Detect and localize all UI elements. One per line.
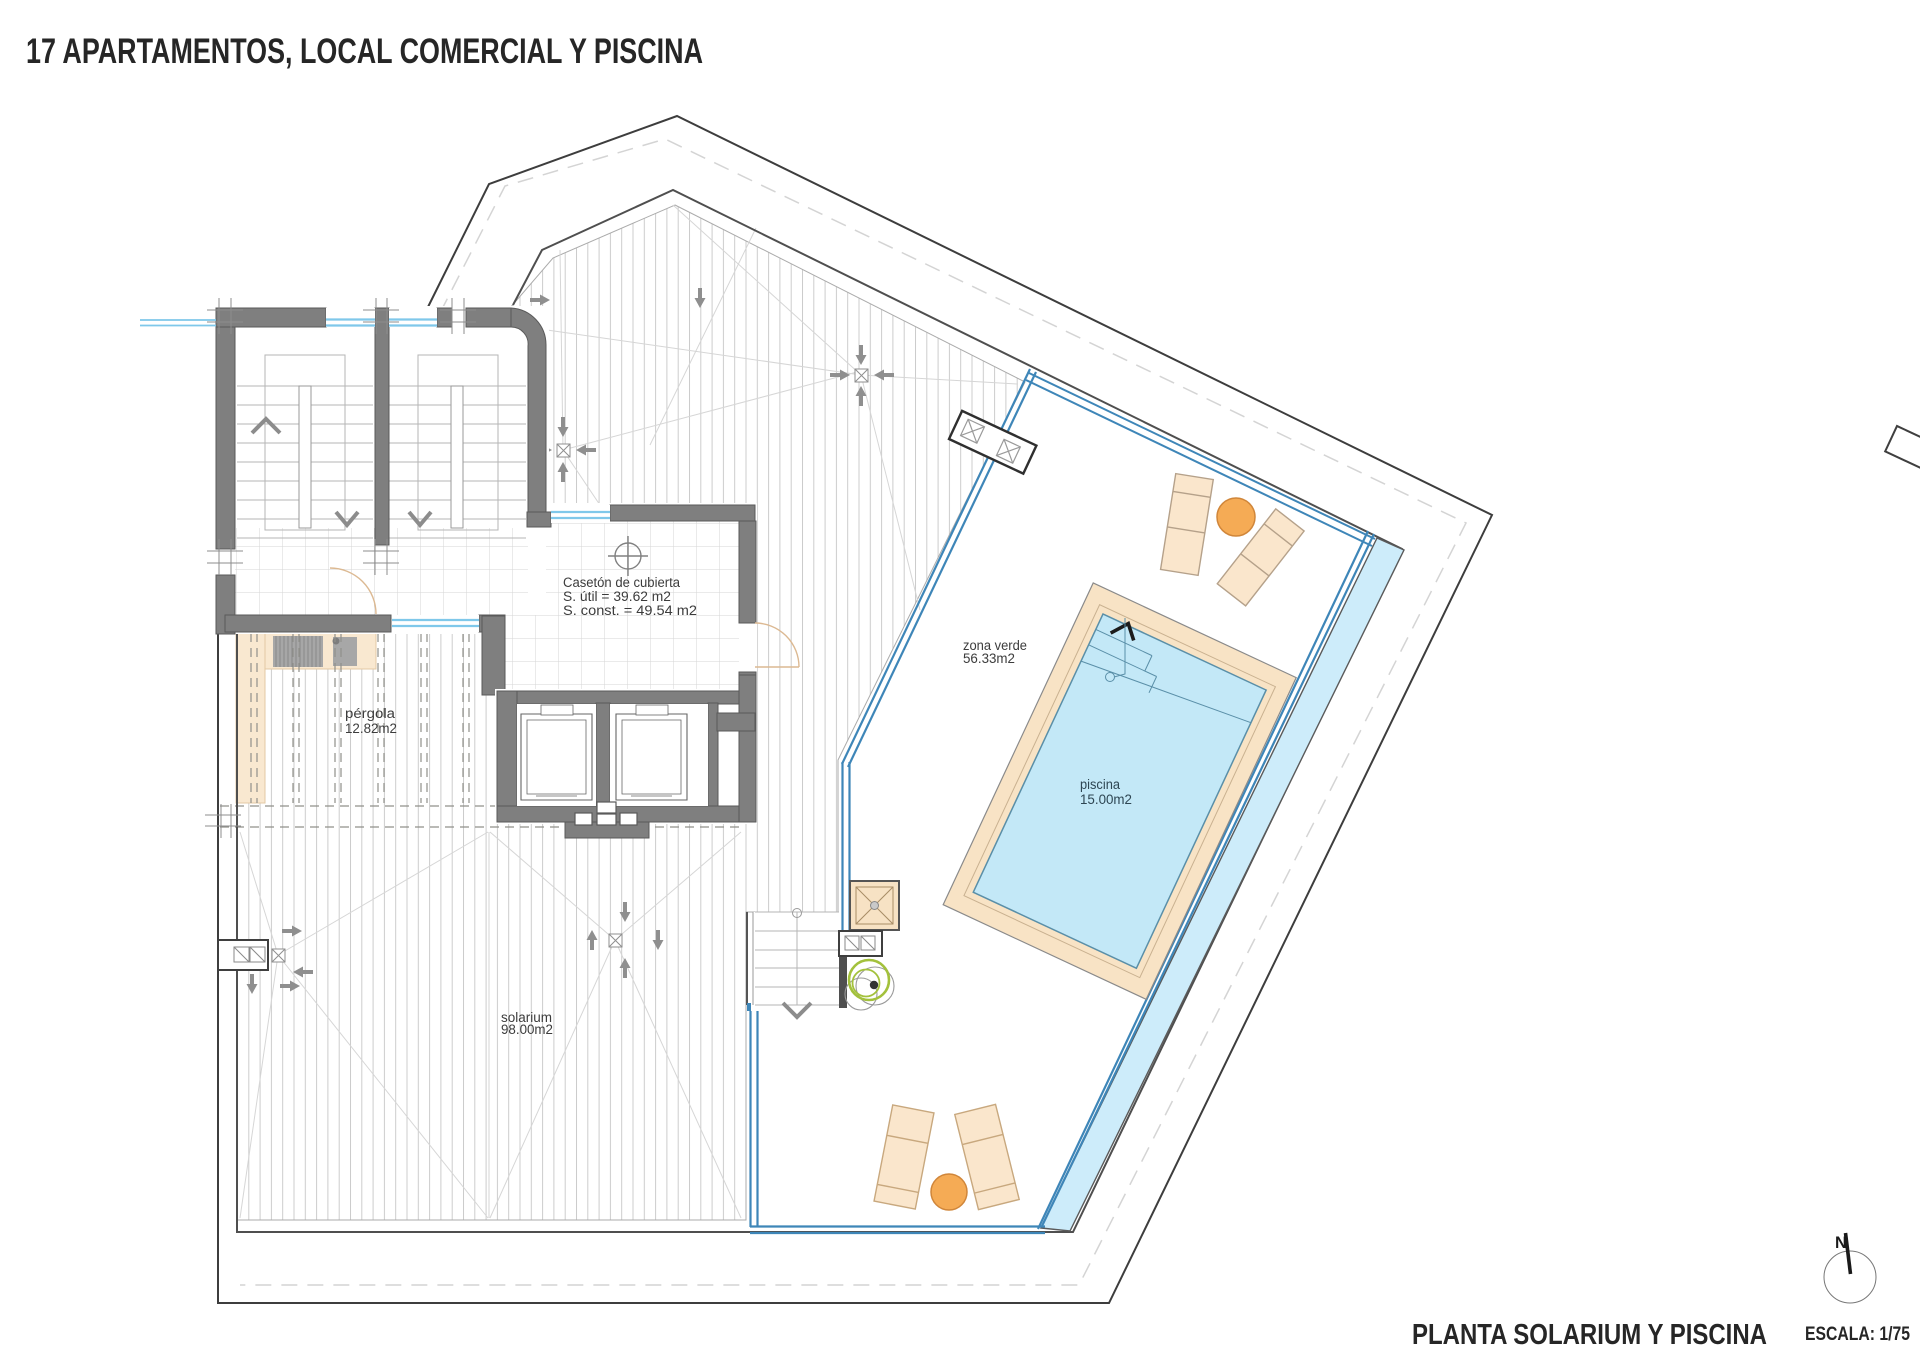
svg-text:Casetón de cubierta: Casetón de cubierta xyxy=(563,575,680,590)
svg-text:ESCALA: 1/75: ESCALA: 1/75 xyxy=(1805,1324,1910,1345)
svg-text:S. útil = 39.62 m2: S. útil = 39.62 m2 xyxy=(563,589,671,604)
svg-text:12.82m2: 12.82m2 xyxy=(345,721,397,736)
svg-text:98.00m2: 98.00m2 xyxy=(501,1022,553,1037)
svg-text:pérgola: pérgola xyxy=(345,706,396,721)
svg-text:56.33m2: 56.33m2 xyxy=(963,651,1015,666)
svg-text:17 APARTAMENTOS, LOCAL COMERCI: 17 APARTAMENTOS, LOCAL COMERCIAL Y PISCI… xyxy=(26,32,703,71)
svg-text:S. const. = 49.54 m2: S. const. = 49.54 m2 xyxy=(563,603,697,618)
svg-text:piscina: piscina xyxy=(1080,777,1120,792)
svg-text:PLANTA SOLARIUM Y PISCINA: PLANTA SOLARIUM Y PISCINA xyxy=(1412,1319,1767,1351)
svg-text:15.00m2: 15.00m2 xyxy=(1080,792,1132,807)
svg-text:N: N xyxy=(1835,1234,1847,1252)
